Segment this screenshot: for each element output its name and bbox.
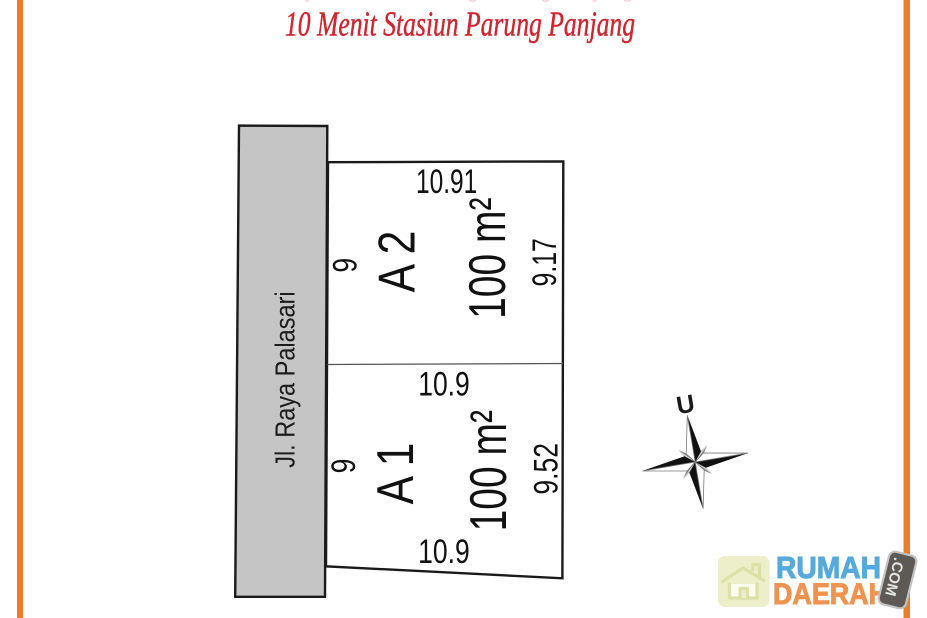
svg-text:DAERAH: DAERAH	[773, 578, 888, 611]
svg-text:9.17: 9.17	[526, 238, 564, 286]
svg-text:Dijual Tanah Kavling Parung Pa: Dijual Tanah Kavling Parung Panjang	[284, 0, 635, 3]
svg-text:10.9: 10.9	[418, 533, 470, 571]
svg-text:100 m²: 100 m²	[458, 410, 517, 531]
svg-text:9: 9	[326, 258, 364, 273]
svg-text:10.91: 10.91	[416, 163, 477, 201]
svg-text:9.52: 9.52	[527, 443, 565, 495]
svg-text:A 1: A 1	[367, 443, 425, 505]
svg-text:10.9: 10.9	[418, 365, 470, 403]
svg-text:A 2: A 2	[368, 231, 426, 293]
svg-text:100 m²: 100 m²	[457, 198, 516, 319]
svg-text:10 Menit Stasiun Parung Panjan: 10 Menit Stasiun Parung Panjang	[285, 5, 635, 44]
svg-text:Jl. Raya Palasari: Jl. Raya Palasari	[271, 291, 301, 467]
svg-text:U: U	[674, 390, 696, 421]
svg-text:9: 9	[325, 459, 363, 474]
